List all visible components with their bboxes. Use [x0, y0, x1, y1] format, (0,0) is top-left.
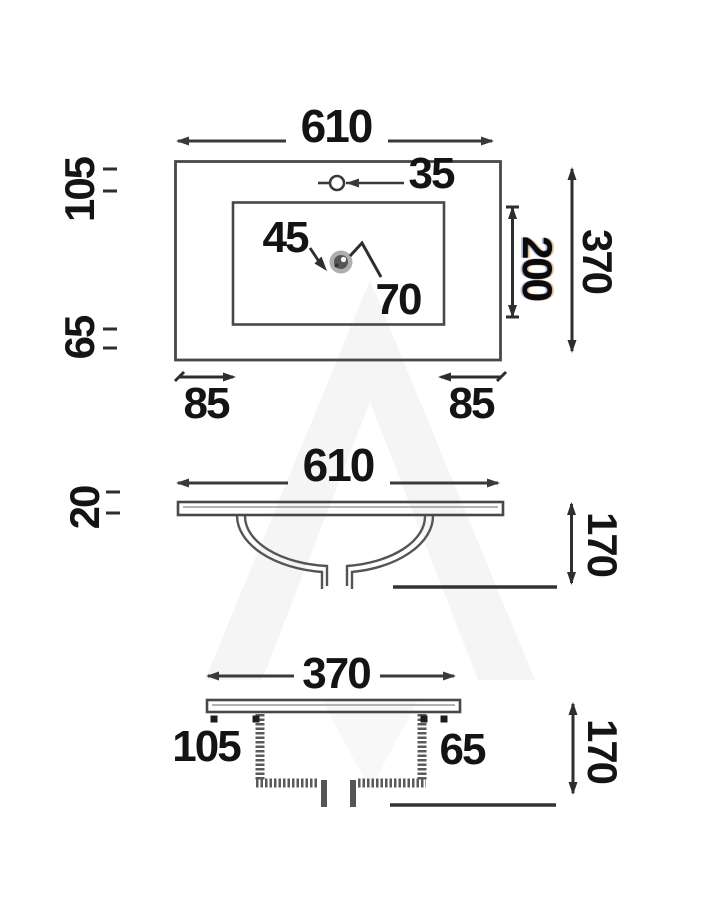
side-drain-pipe — [324, 780, 353, 807]
dim-top-faucet-hole: 35 — [409, 152, 454, 196]
arrowhead-right — [487, 479, 500, 488]
technical-drawing-sheet: 610 35 45 70 105 65 200 370 85 85 610 20… — [0, 0, 701, 900]
dim-side-bowl-height: 170 — [581, 719, 623, 783]
dim-top-corner-left: 85 — [184, 382, 229, 426]
dim-top-overall-depth: 370 — [576, 229, 618, 293]
arrowhead-left — [346, 179, 359, 188]
slab-thickness-ticks — [106, 492, 120, 513]
dim-top-width: 610 — [301, 103, 372, 149]
drain-symbol — [330, 251, 353, 274]
arrowhead-right — [481, 137, 494, 146]
dim-top-bowl-depth: 200 — [516, 236, 558, 300]
arrowhead-left — [176, 137, 189, 146]
top-margin-ticks — [103, 169, 117, 191]
arrowhead-left — [176, 479, 189, 488]
dim-top-top-margin: 105 — [59, 158, 101, 222]
bottom-margin-ticks — [103, 329, 117, 348]
arrowhead-up — [567, 502, 576, 515]
arrowhead-down — [567, 572, 576, 585]
dim-top-drain-x: 45 — [263, 216, 308, 260]
arrowhead-right — [443, 672, 456, 681]
arrowhead-down — [569, 782, 578, 795]
dim-side-right-margin: 65 — [440, 728, 485, 772]
arrowhead-down — [568, 340, 577, 353]
top-view — [103, 137, 577, 382]
faucet-hole — [330, 176, 344, 190]
arrowhead-up — [568, 167, 577, 180]
dim-top-bottom-margin: 65 — [59, 317, 101, 360]
dim-front-slab-thickness: 20 — [64, 487, 106, 530]
arrowhead-up — [569, 702, 578, 715]
dim-side-width: 370 — [302, 652, 369, 696]
front-view — [106, 479, 576, 590]
dim-top-corner-right: 85 — [449, 382, 494, 426]
watermark-logo — [205, 280, 535, 790]
dim-front-width: 610 — [303, 442, 374, 488]
dim-top-drain-y: 70 — [376, 278, 421, 322]
joint-markers — [211, 716, 448, 723]
drain-y-leader-line — [350, 243, 381, 277]
dim-side-left-margin: 105 — [172, 725, 239, 769]
dim-front-bowl-height: 170 — [581, 512, 623, 576]
